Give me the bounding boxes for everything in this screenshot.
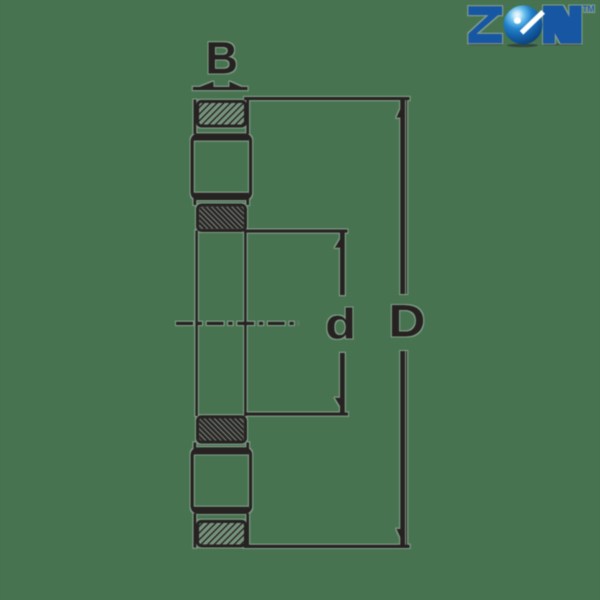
svg-text:TM: TM	[582, 4, 594, 14]
svg-text:D: D	[388, 296, 425, 347]
svg-text:B: B	[205, 33, 238, 84]
svg-text:d: d	[325, 300, 356, 347]
